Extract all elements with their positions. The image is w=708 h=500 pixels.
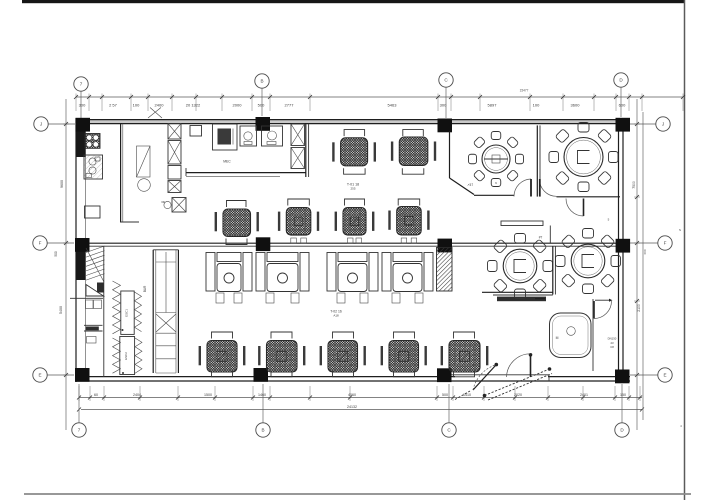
svg-text:5897: 5897 <box>488 103 498 108</box>
svg-text:7: 7 <box>80 82 83 87</box>
svg-text:2401: 2401 <box>580 393 588 397</box>
svg-text:2777: 2777 <box>285 103 295 108</box>
svg-text:C8: C8 <box>610 345 614 349</box>
svg-text:7: 7 <box>78 428 81 433</box>
svg-text:100: 100 <box>133 103 140 108</box>
svg-text:255: 255 <box>350 187 355 191</box>
svg-text:2020: 2020 <box>514 393 522 397</box>
svg-text:600: 600 <box>619 103 626 108</box>
svg-text:E: E <box>663 373 666 378</box>
svg-text:B: B <box>261 428 264 433</box>
svg-text:#7: #7 <box>539 236 543 240</box>
svg-text:15477: 15477 <box>520 89 529 93</box>
svg-text:F: F <box>39 241 42 246</box>
svg-text:A18: A18 <box>333 314 339 318</box>
svg-text:ESC2: ESC2 <box>124 352 128 360</box>
svg-text:500: 500 <box>258 103 265 108</box>
svg-text:20 1322: 20 1322 <box>186 103 201 108</box>
svg-text:2000: 2000 <box>233 103 243 108</box>
svg-text:BAR: BAR <box>143 285 147 292</box>
svg-text:1460: 1460 <box>258 393 266 397</box>
svg-text:500: 500 <box>54 251 58 257</box>
svg-text:1500: 1500 <box>204 393 212 397</box>
svg-text:7500: 7500 <box>632 181 636 189</box>
svg-text:N: N <box>679 228 681 232</box>
svg-text:600: 600 <box>643 249 647 254</box>
svg-text:2404: 2404 <box>133 393 141 397</box>
svg-text:2 57: 2 57 <box>109 103 118 108</box>
svg-text:9600: 9600 <box>60 180 64 188</box>
svg-text:J: J <box>40 122 42 127</box>
svg-text:60: 60 <box>94 393 98 397</box>
svg-text:2400: 2400 <box>155 103 165 108</box>
svg-text:B: B <box>260 79 263 84</box>
svg-text:F: F <box>664 241 667 246</box>
svg-text:M: M <box>556 336 559 340</box>
svg-text:300: 300 <box>79 103 86 108</box>
svg-text:↗57: ↗57 <box>467 183 473 187</box>
svg-text:5463: 5463 <box>388 103 398 108</box>
svg-text:500: 500 <box>442 393 448 397</box>
svg-text:2100: 2100 <box>637 304 641 312</box>
svg-text:5400: 5400 <box>59 306 63 314</box>
svg-text:3600: 3600 <box>571 103 581 108</box>
svg-text:J: J <box>662 122 664 127</box>
svg-text:4060: 4060 <box>348 393 356 397</box>
svg-text:1410: 1410 <box>463 393 471 397</box>
svg-text:MEC: MEC <box>223 160 231 164</box>
svg-text:150: 150 <box>620 393 626 397</box>
svg-text:ESC1: ESC1 <box>125 309 129 317</box>
svg-text:E: E <box>38 373 41 378</box>
svg-text:100: 100 <box>533 103 540 108</box>
svg-text:24132: 24132 <box>347 405 357 409</box>
